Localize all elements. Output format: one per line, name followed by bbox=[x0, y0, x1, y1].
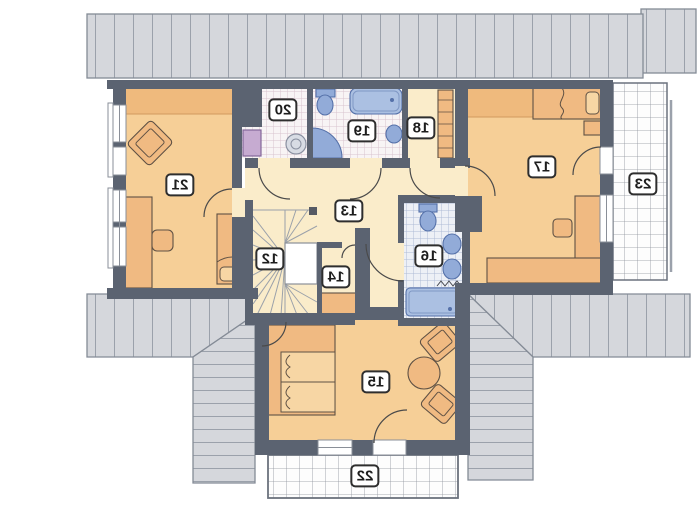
room-label-21: 21 bbox=[166, 173, 195, 196]
stairwell-void bbox=[285, 243, 317, 284]
floor-plan: 12 13 14 15 16 17 18 19 20 21 22 23 bbox=[0, 0, 700, 512]
room-label-23: 23 bbox=[629, 172, 658, 195]
door-opening bbox=[410, 158, 440, 168]
window bbox=[113, 147, 126, 175]
chair-icon bbox=[553, 219, 572, 237]
room-label-14: 14 bbox=[322, 265, 351, 288]
door-opening bbox=[455, 166, 468, 196]
hall-nook-floor bbox=[366, 240, 403, 310]
balcony-door-opening bbox=[373, 440, 406, 455]
toilet-icon bbox=[317, 95, 333, 115]
room-label-22: 22 bbox=[351, 464, 380, 487]
balcony-door-opening bbox=[600, 147, 613, 174]
pillow-icon bbox=[586, 92, 599, 114]
room-label-16: 16 bbox=[415, 244, 444, 267]
bathtub-icon bbox=[350, 88, 402, 114]
room-label-15: 15 bbox=[362, 370, 391, 393]
sink-icon bbox=[443, 259, 461, 279]
roof-top bbox=[87, 14, 643, 78]
door-opening bbox=[258, 158, 290, 168]
wardrobe-icon bbox=[321, 293, 356, 316]
chair-icon bbox=[152, 230, 173, 251]
newel-post bbox=[309, 207, 317, 215]
room-label-13: 13 bbox=[335, 199, 364, 222]
roof-top-right bbox=[641, 9, 696, 73]
bathtub-icon bbox=[406, 288, 460, 316]
desk-icon bbox=[575, 196, 602, 260]
room-label-18: 18 bbox=[407, 116, 436, 139]
room-label-12: 12 bbox=[256, 247, 285, 270]
toilet-icon bbox=[420, 211, 436, 231]
sideboard-icon bbox=[487, 258, 601, 283]
room-label-19: 19 bbox=[348, 119, 377, 142]
sink-icon bbox=[386, 125, 402, 143]
window-sill bbox=[108, 103, 113, 177]
round-basin-icon bbox=[286, 134, 306, 154]
room-label-20: 20 bbox=[269, 98, 298, 121]
floor-plan-drawing bbox=[0, 0, 700, 512]
room-21-knee-strip bbox=[125, 88, 232, 114]
room-label-17: 17 bbox=[528, 155, 557, 178]
door-opening bbox=[232, 188, 245, 217]
desk-icon bbox=[123, 197, 152, 288]
window-sill bbox=[108, 188, 113, 268]
sink-icon bbox=[443, 234, 461, 254]
round-table-icon bbox=[408, 357, 440, 389]
door-opening bbox=[398, 243, 404, 280]
washing-machine-icon bbox=[243, 130, 261, 156]
door-opening bbox=[350, 158, 382, 168]
